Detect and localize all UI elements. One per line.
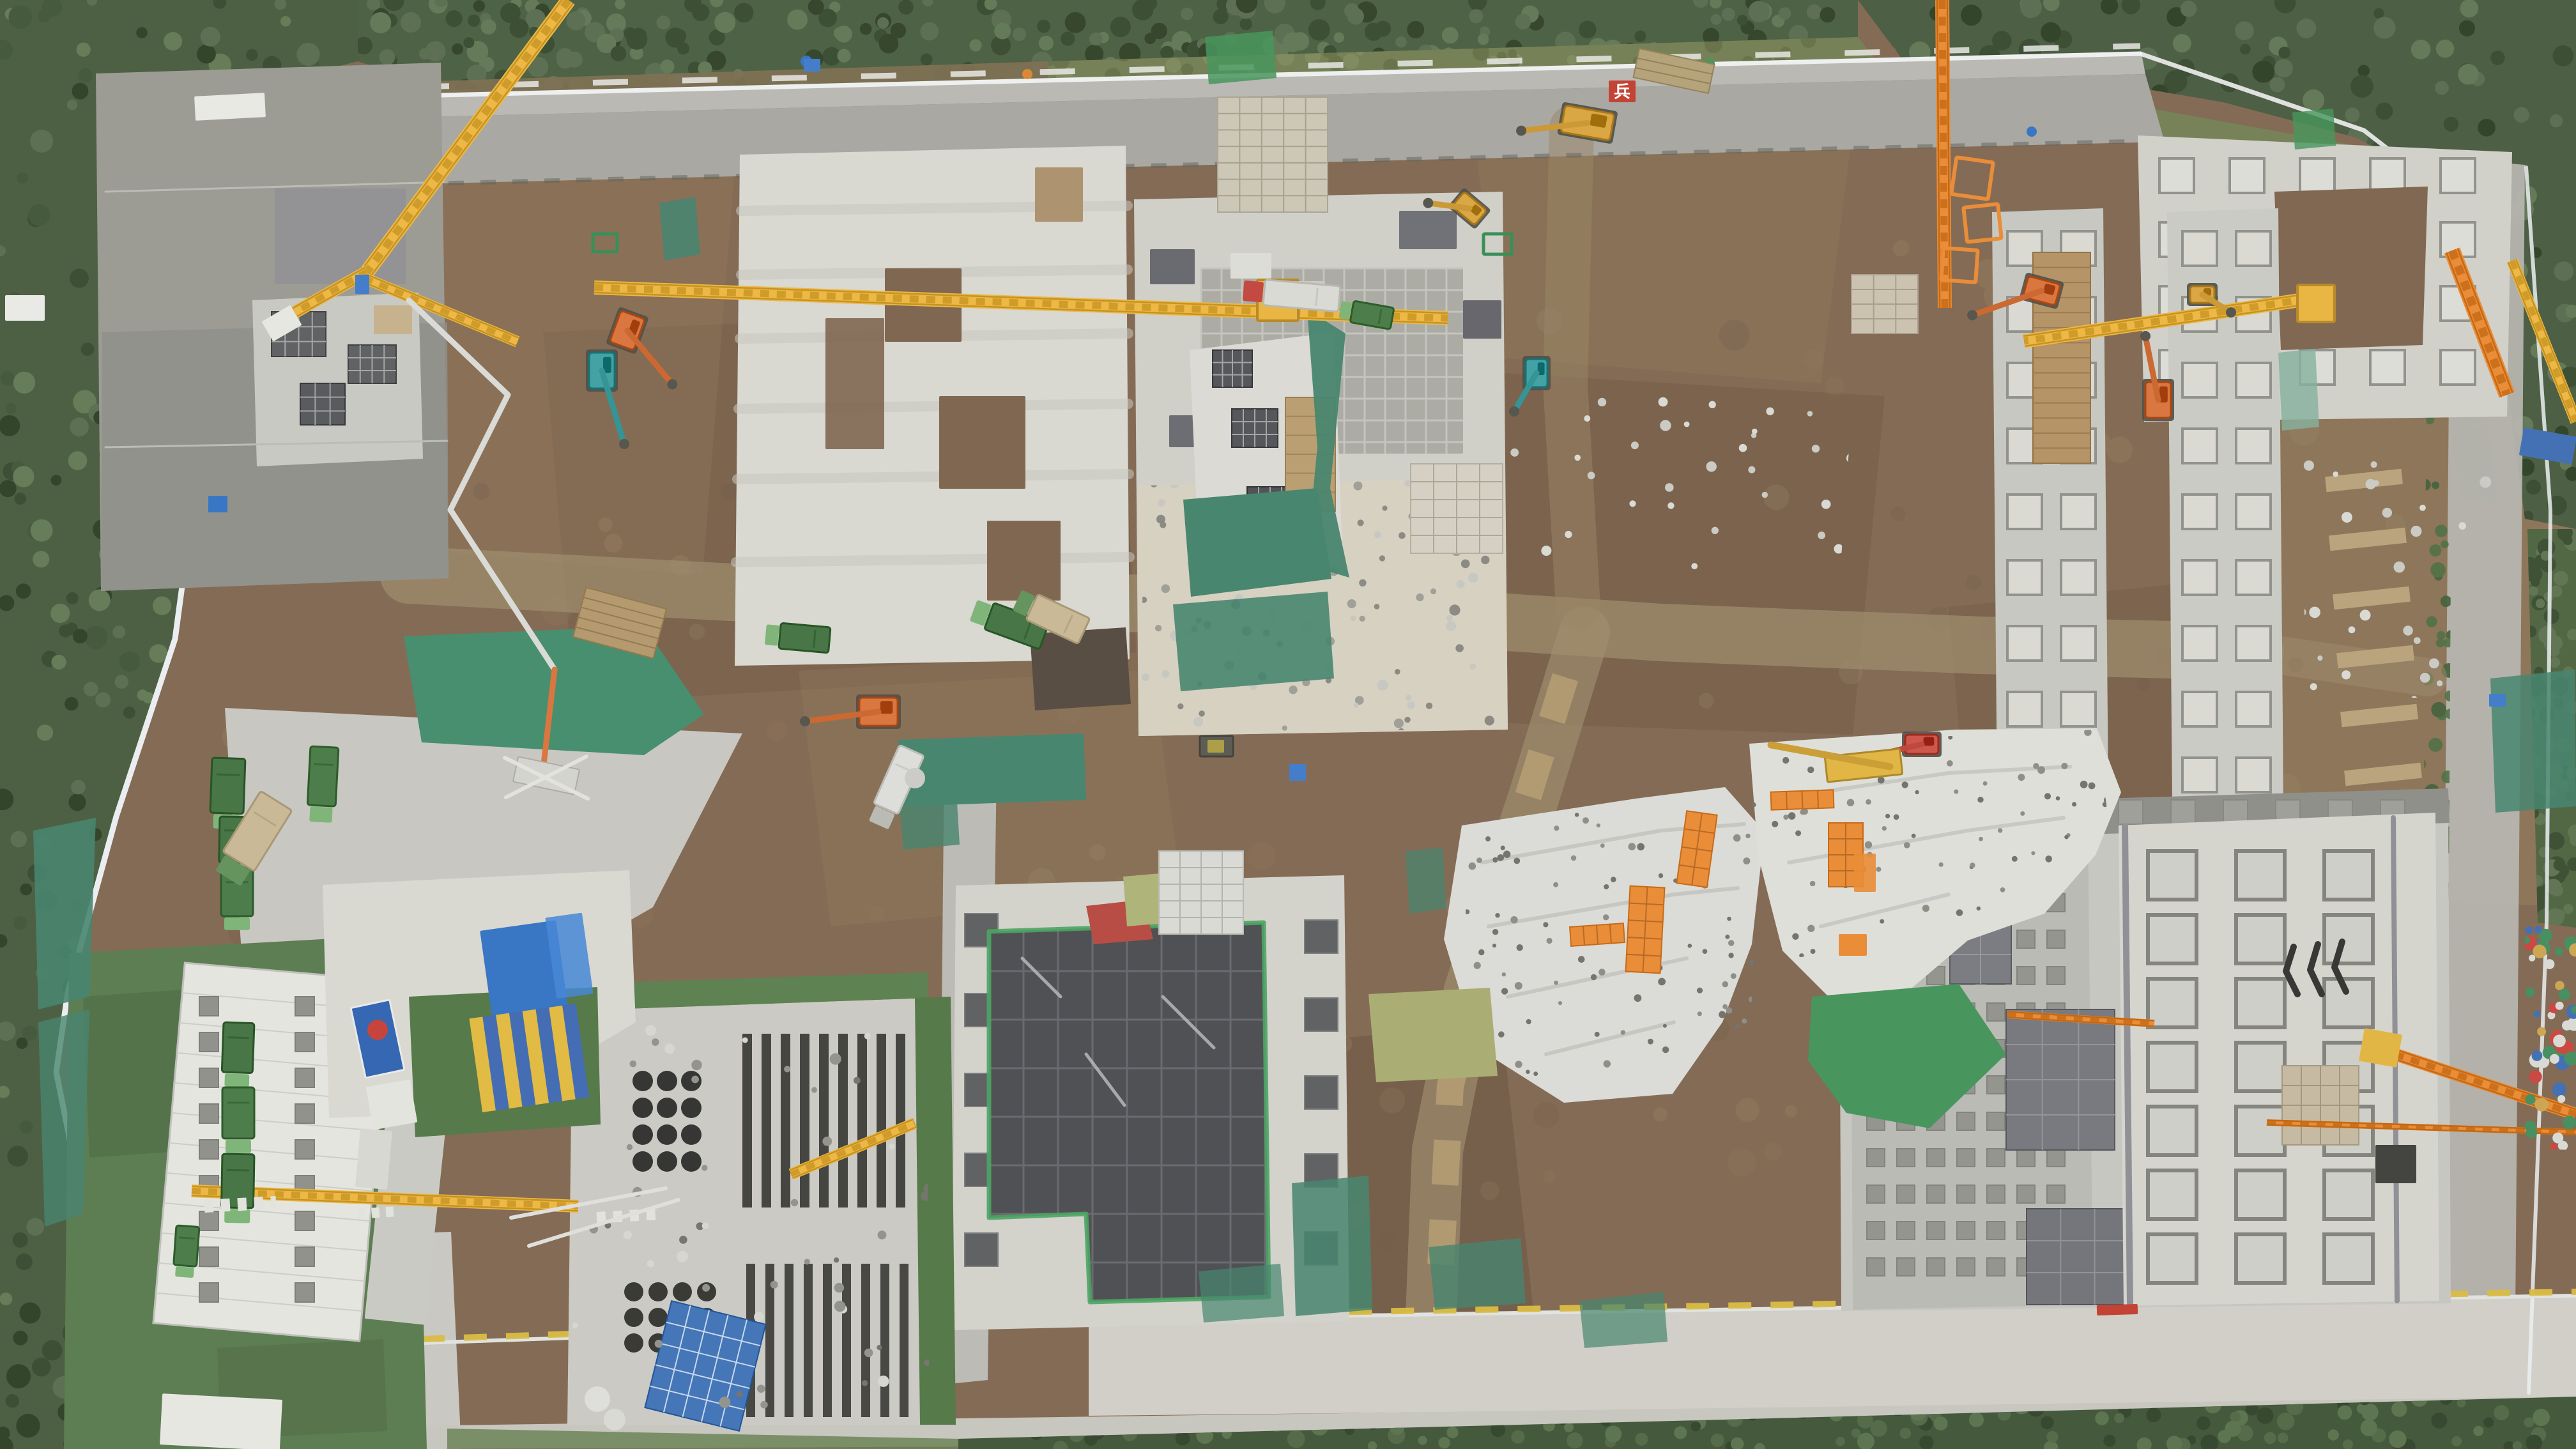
construction-site-aerial-photo: Aerial drone view of a large residential…	[0, 0, 2576, 1449]
screenshot-root: Aerial drone view of a large residential…	[0, 0, 2576, 1449]
haze-overlay	[0, 0, 2576, 1449]
